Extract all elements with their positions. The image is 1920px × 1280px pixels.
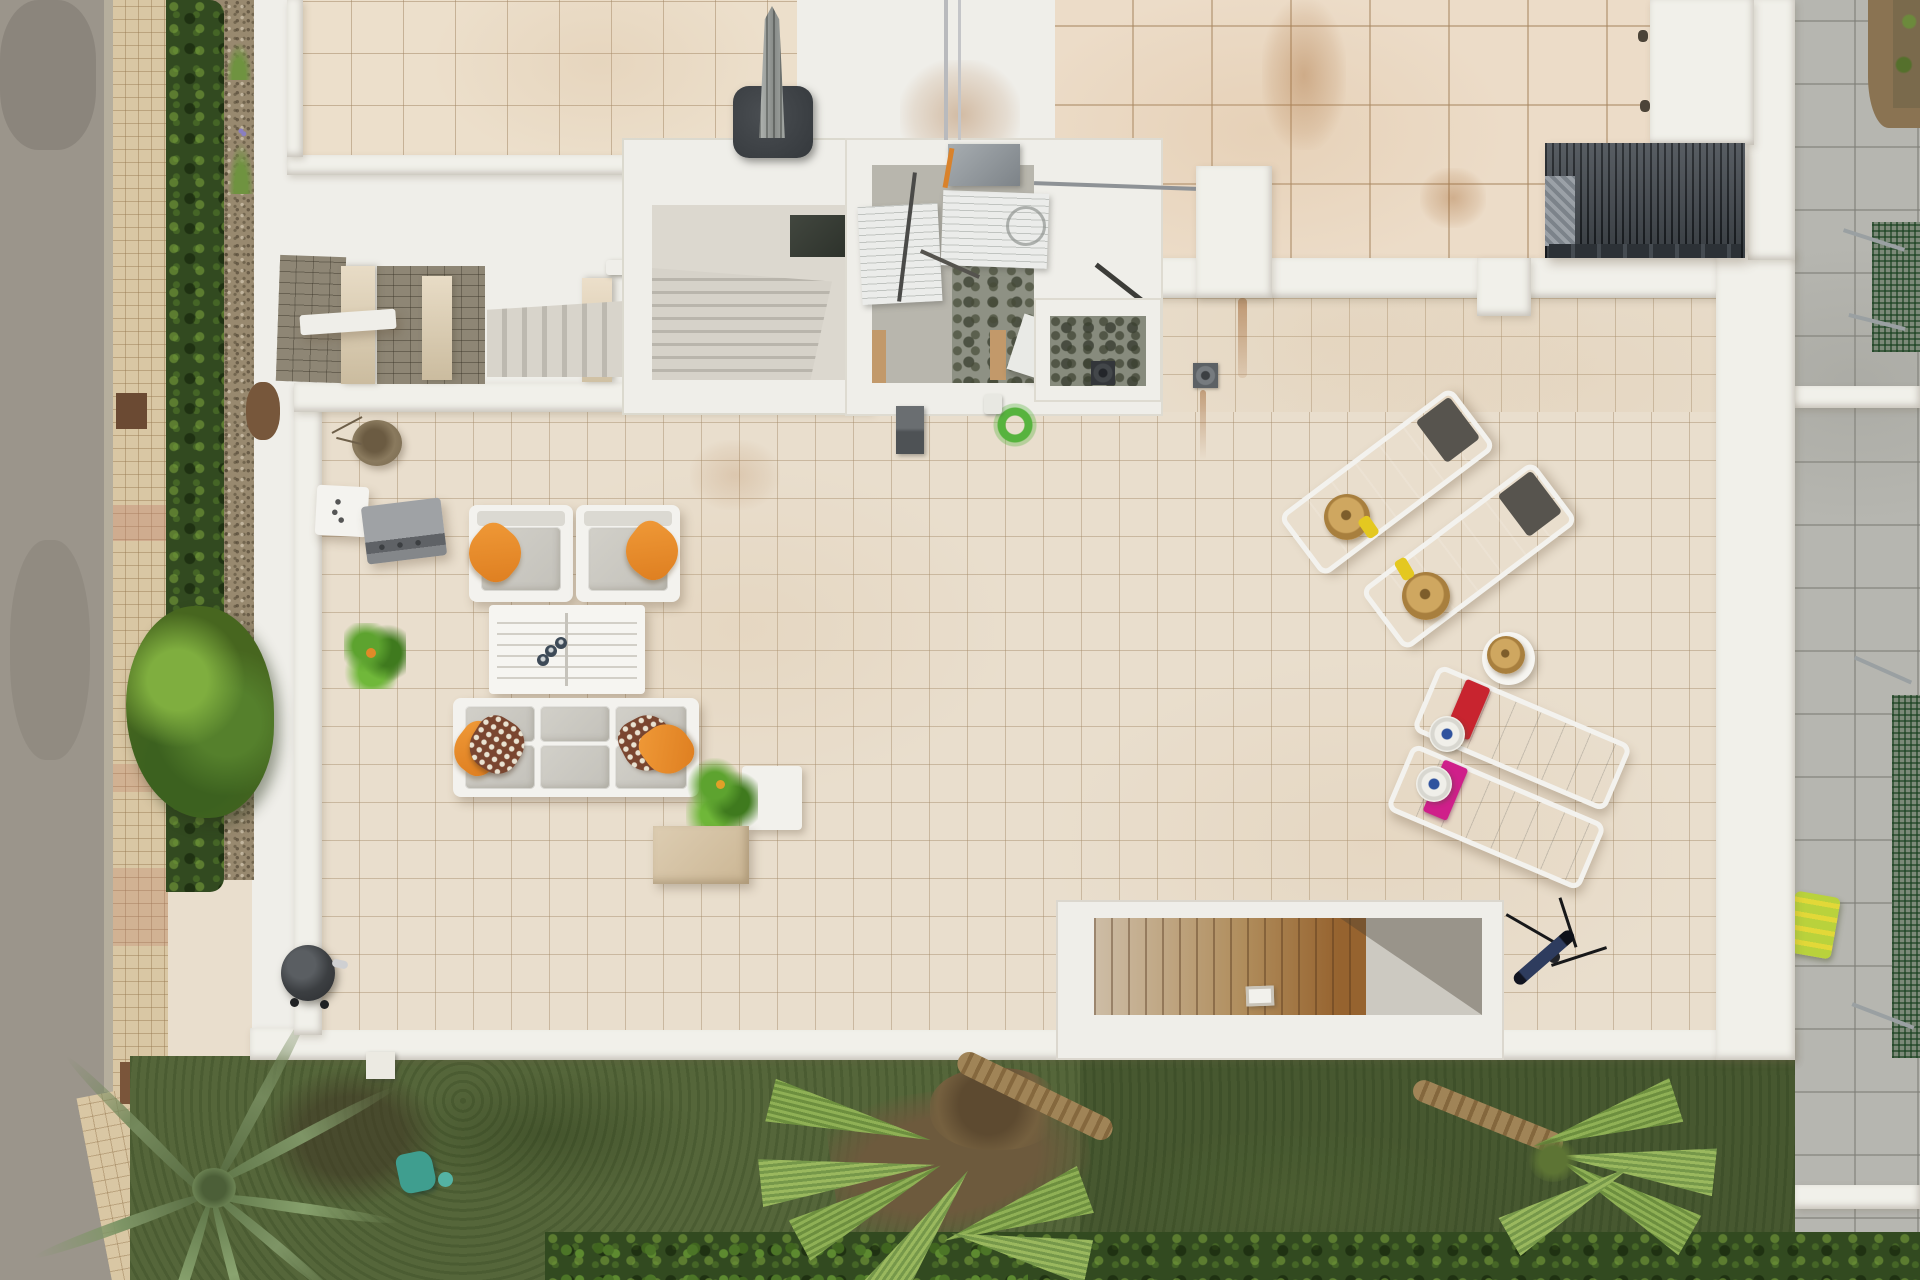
rust-stain	[1262, 0, 1346, 150]
coffee-table	[489, 605, 645, 694]
plant-flower	[716, 780, 725, 789]
palm-crown	[1528, 1138, 1578, 1182]
doormat	[1246, 986, 1275, 1007]
bbq-wheel	[290, 998, 299, 1007]
sidewalk-access-cover	[116, 393, 147, 429]
upper-left-terrace	[300, 0, 800, 157]
sofa-back-cushion	[540, 706, 610, 742]
straw-hat	[1487, 636, 1525, 674]
sidewalk-pink-row	[113, 505, 168, 541]
drain-grate	[1091, 361, 1115, 385]
neighbor-ledge	[1795, 386, 1920, 408]
pergola-gutter	[1549, 244, 1741, 258]
stair-steps	[1094, 918, 1366, 1015]
drain-grate	[1193, 363, 1218, 388]
roof-pipe	[944, 0, 948, 140]
teal-dot	[438, 1172, 453, 1187]
right-wall-upper	[1748, 0, 1795, 260]
left-parapet	[294, 383, 322, 1035]
parapet-pillar	[1477, 258, 1531, 316]
roof-annex-block	[1196, 166, 1272, 298]
sun-hat-white	[1429, 716, 1465, 752]
dirt-patch	[246, 382, 280, 440]
corner-wall-block	[1650, 0, 1754, 145]
pergola-end-panel	[1545, 176, 1575, 246]
sofa-seat-cushion	[540, 745, 610, 789]
stairwell-steps	[652, 268, 832, 380]
neighbor-paving	[1793, 0, 1920, 1280]
fan-frond	[765, 1079, 936, 1162]
roof-pipe	[958, 0, 961, 140]
palm-left	[60, 1040, 440, 1280]
cup	[537, 654, 549, 666]
kettle-barbecue	[281, 945, 335, 1001]
anchor-dot	[1638, 30, 1648, 42]
neighbor-ledge	[1795, 1185, 1920, 1209]
grass-sprig	[226, 42, 252, 80]
bbq-wheel	[320, 1000, 329, 1009]
cup	[555, 637, 567, 649]
sun-hat-white	[1416, 766, 1452, 802]
ac-fan-circle	[1006, 206, 1046, 246]
concrete-cube-table	[653, 826, 749, 884]
meter-box	[896, 406, 924, 454]
mesh-fence	[1892, 695, 1920, 1058]
palm-right	[1380, 1060, 1800, 1280]
pergola	[1545, 143, 1745, 258]
potted-plant	[686, 758, 758, 836]
gas-grill	[361, 497, 447, 564]
palm-center	[700, 1040, 1120, 1280]
rust-streak	[1238, 298, 1247, 378]
wall-cap-wood	[872, 330, 886, 383]
stairwell-skylight-slot	[790, 215, 846, 257]
weeds-top-right	[1893, 0, 1920, 108]
wall-cap-wood	[990, 330, 1006, 380]
flower-dots	[234, 124, 248, 138]
frond	[62, 1052, 212, 1202]
right-parapet	[1716, 250, 1795, 1060]
hose-tap	[984, 394, 1002, 414]
aerial-photo	[0, 0, 1920, 1280]
telescope-tripod	[1490, 905, 1620, 1015]
table-center-gap	[565, 613, 568, 686]
sidewalk-pink-row	[113, 868, 168, 946]
straw-hat	[1402, 572, 1450, 620]
rust-stain	[690, 440, 780, 510]
rooftop-equipment	[948, 144, 1020, 186]
upper-left-parapet-side	[287, 0, 303, 157]
curb	[104, 0, 113, 1092]
armchair	[469, 505, 573, 602]
porch-pillar	[422, 276, 452, 380]
palm-crown	[192, 1168, 236, 1208]
plant-flower	[366, 648, 376, 658]
road-patch	[0, 0, 96, 150]
rust-streak	[1200, 390, 1206, 460]
sofa	[453, 698, 699, 797]
anchor-dot	[1640, 100, 1650, 112]
road-patch	[10, 540, 90, 760]
grass-sprig	[228, 142, 254, 194]
fan-frond	[758, 1141, 937, 1207]
rust-stain	[1420, 168, 1486, 228]
wall-box-dots	[330, 498, 346, 524]
armchair	[576, 505, 680, 602]
